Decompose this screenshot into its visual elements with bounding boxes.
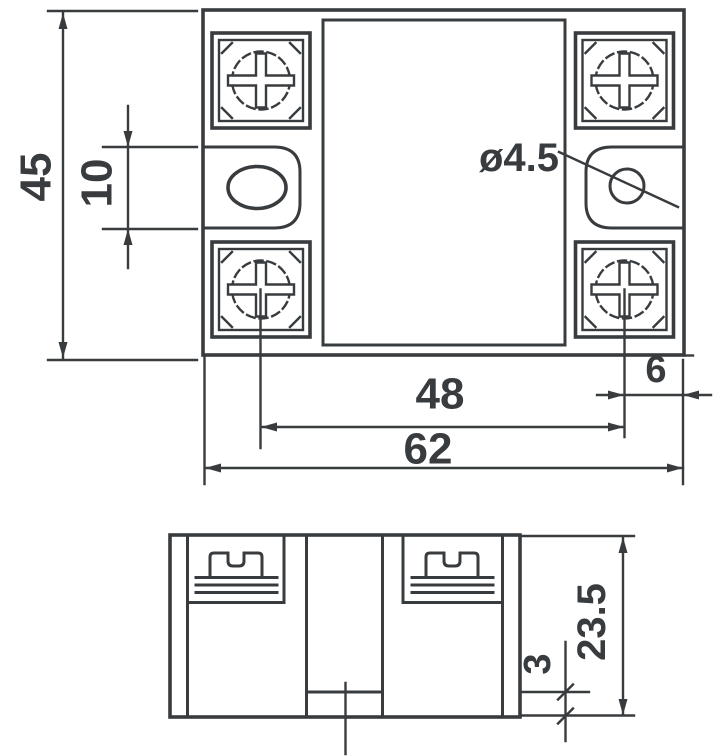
arrow-left-icon — [683, 391, 699, 400]
terminal-clip-left — [188, 535, 285, 603]
technical-drawing-canvas: 45 10 ø4.5 48 62 — [0, 0, 722, 756]
dim-depth: 23.5 — [520, 536, 634, 716]
clip-symbol — [412, 553, 493, 593]
dim-label-10: 10 — [73, 159, 122, 208]
dim-label-hole-diameter: ø4.5 — [479, 136, 559, 180]
arrow-right-icon — [608, 391, 624, 400]
dim-slot-spacing: 10 — [73, 106, 198, 268]
central-recess — [307, 535, 383, 754]
screw-terminal-top-right — [576, 33, 674, 128]
arrow-down-icon — [619, 699, 628, 715]
relay-cover-outline — [323, 20, 565, 345]
arrow-down-icon — [59, 342, 68, 358]
dim-label-48: 48 — [416, 370, 465, 419]
dim-label-6: 6 — [645, 349, 666, 391]
dim-label-45: 45 — [12, 153, 61, 202]
dim-label-3: 3 — [517, 653, 559, 674]
arrow-right-icon — [667, 464, 683, 473]
mounting-slot-left — [204, 147, 301, 228]
dim-label-62: 62 — [404, 425, 453, 474]
clip-symbol — [196, 553, 277, 593]
dim-body-width: 62 — [205, 425, 683, 474]
leader-line — [559, 152, 678, 207]
front-view: 23.5 3 — [170, 535, 634, 754]
arrow-left-icon — [261, 423, 277, 432]
slot-hole — [228, 167, 286, 209]
mounting-hole-right — [559, 147, 684, 228]
arrow-right-icon — [608, 423, 624, 432]
top-view: 45 10 ø4.5 48 62 — [12, 10, 712, 484]
arrow-left-icon — [205, 464, 221, 473]
dim-screw-spacing: 48 — [261, 370, 624, 432]
terminal-clip-right — [403, 535, 503, 603]
arrow-up-icon — [124, 229, 133, 245]
hole-circle — [610, 169, 644, 203]
dim-label-23-5: 23.5 — [570, 583, 614, 661]
arrow-up-icon — [59, 13, 68, 29]
relay-dimension-drawing: 45 10 ø4.5 48 62 — [0, 0, 722, 756]
arrow-down-icon — [124, 131, 133, 147]
arrow-up-icon — [619, 537, 628, 553]
screw-terminal-top-left — [212, 33, 310, 128]
